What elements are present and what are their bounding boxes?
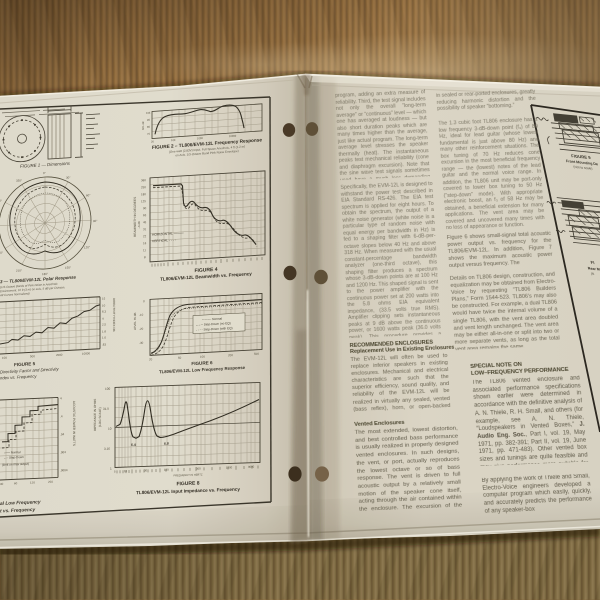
svg-text:250: 250 bbox=[141, 185, 146, 189]
svg-text:15: 15 bbox=[102, 296, 106, 300]
svg-text:20: 20 bbox=[149, 357, 153, 361]
svg-text:.04: .04 bbox=[60, 432, 64, 436]
svg-text:240°: 240° bbox=[0, 251, 3, 255]
svg-text:330°: 330° bbox=[16, 178, 22, 182]
svg-text:300: 300 bbox=[196, 466, 201, 470]
svg-text:1.0: 1.0 bbox=[102, 335, 106, 339]
svg-text:-30: -30 bbox=[139, 341, 144, 345]
svg-text:120°: 120° bbox=[84, 245, 90, 249]
svg-text:210°: 210° bbox=[16, 268, 22, 272]
svg-text:-20: -20 bbox=[139, 327, 144, 331]
svg-text:6.3: 6.3 bbox=[102, 309, 106, 313]
svg-text:100: 100 bbox=[171, 138, 176, 142]
svg-text:90: 90 bbox=[143, 206, 147, 210]
svg-text:3.16: 3.16 bbox=[104, 447, 110, 451]
svg-text:30°: 30° bbox=[66, 175, 70, 179]
svg-text:11: 11 bbox=[143, 248, 146, 252]
svg-text:10: 10 bbox=[124, 469, 128, 473]
svg-text:—— Normal: —— Normal bbox=[4, 450, 21, 455]
svg-text:–6 dB: –6 dB bbox=[137, 221, 141, 229]
svg-text:BEAMWIDTH IN DEGREES: BEAMWIDTH IN DEGREES bbox=[133, 197, 137, 237]
svg-text:6.4: 6.4 bbox=[131, 443, 136, 447]
svg-text:2000: 2000 bbox=[56, 353, 63, 357]
svg-text:22: 22 bbox=[143, 234, 147, 238]
svg-text:100: 100 bbox=[2, 356, 7, 360]
svg-text:10: 10 bbox=[108, 427, 112, 431]
svg-text:0°: 0° bbox=[43, 171, 46, 175]
svg-text:1: 1 bbox=[110, 467, 112, 471]
svg-text:ACOUSTIC POWER IN WATTS: ACOUSTIC POWER IN WATTS bbox=[72, 401, 76, 446]
svg-text:1.6: 1.6 bbox=[102, 329, 106, 333]
svg-text:10: 10 bbox=[102, 303, 106, 307]
svg-text:1000: 1000 bbox=[197, 136, 203, 140]
svg-text:1000: 1000 bbox=[226, 465, 233, 469]
svg-text:DIRECTIVITY INDEX DB: DIRECTIVITY INDEX DB bbox=[112, 298, 116, 332]
svg-text:50: 50 bbox=[178, 356, 182, 360]
svg-text:105: 105 bbox=[146, 111, 151, 115]
svg-text:10000: 10000 bbox=[82, 351, 90, 355]
svg-text:500: 500 bbox=[30, 354, 35, 358]
svg-text:45: 45 bbox=[143, 220, 147, 224]
svg-text:60°: 60° bbox=[86, 193, 90, 197]
svg-text:(LOG SCALE): (LOG SCALE) bbox=[98, 407, 102, 427]
svg-text:360: 360 bbox=[141, 178, 146, 182]
svg-text:6.8: 6.8 bbox=[164, 442, 169, 446]
svg-text:60: 60 bbox=[14, 481, 18, 485]
svg-text:.004: .004 bbox=[60, 450, 66, 454]
svg-text:180: 180 bbox=[141, 192, 146, 196]
svg-text:300°: 300° bbox=[0, 199, 2, 203]
svg-text:SPL dB: SPL dB bbox=[141, 121, 145, 130]
svg-text:150°: 150° bbox=[65, 265, 71, 269]
svg-text:31.5: 31.5 bbox=[103, 407, 109, 411]
svg-text:100: 100 bbox=[105, 387, 110, 391]
svg-text:500: 500 bbox=[254, 352, 259, 356]
svg-text:16: 16 bbox=[143, 241, 147, 245]
svg-text:IMPEDANCE IN OHMS: IMPEDANCE IN OHMS bbox=[93, 399, 97, 432]
svg-text:63: 63 bbox=[143, 213, 147, 217]
svg-text:.0004: .0004 bbox=[60, 468, 68, 472]
svg-text:200: 200 bbox=[228, 353, 233, 357]
svg-text:LEVEL IN dB: LEVEL IN dB bbox=[133, 312, 137, 330]
svg-text:.4: .4 bbox=[60, 414, 63, 418]
svg-text:2.5: 2.5 bbox=[102, 322, 106, 326]
svg-text:FIGURE 8: FIGURE 8 bbox=[176, 481, 199, 488]
svg-text:31: 31 bbox=[143, 227, 147, 231]
svg-text:30: 30 bbox=[144, 468, 148, 472]
svg-text:250: 250 bbox=[48, 480, 53, 484]
svg-text:90°: 90° bbox=[93, 219, 97, 223]
svg-text:.63: .63 bbox=[102, 342, 106, 346]
svg-text:120: 120 bbox=[30, 480, 35, 484]
svg-text:125: 125 bbox=[141, 199, 146, 203]
svg-text:3000: 3000 bbox=[248, 465, 255, 469]
svg-text:30: 30 bbox=[0, 482, 4, 486]
svg-text:10000: 10000 bbox=[229, 134, 237, 139]
svg-text:-10: -10 bbox=[139, 313, 144, 317]
svg-text:100: 100 bbox=[164, 468, 169, 472]
svg-text:100: 100 bbox=[200, 354, 205, 358]
